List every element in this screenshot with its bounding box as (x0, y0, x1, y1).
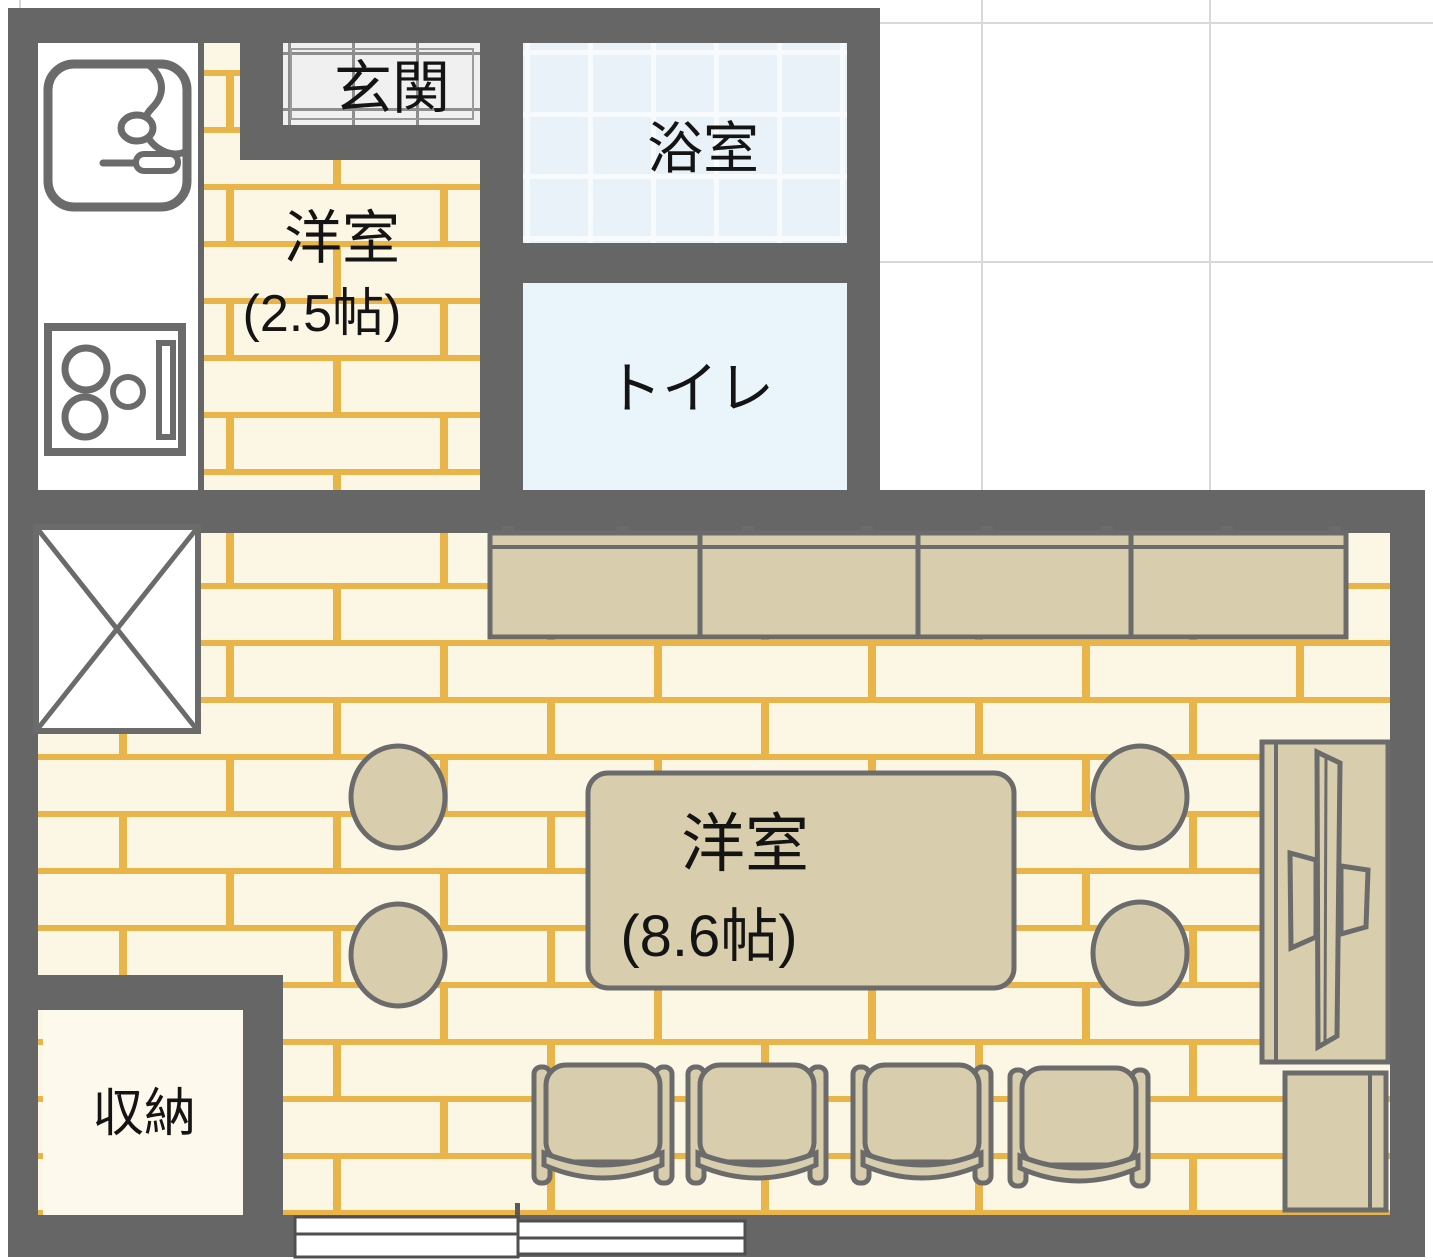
wall-bath-toilet-divider (523, 243, 847, 283)
wall-entrance-bottom (240, 125, 480, 160)
wall-right (1390, 495, 1425, 1257)
floorplan-canvas: 玄関 浴室 トイレ 洋室 (2.5帖) 洋室 (8.6帖) 収納 (0, 0, 1433, 1260)
tv-screen (1317, 752, 1340, 1047)
storage-label: 収納 (92, 1085, 196, 1143)
toilet-label: トイレ (606, 357, 774, 420)
stool (351, 904, 445, 1006)
wall-storage-right (243, 975, 283, 1215)
tv-stand-left (1290, 853, 1316, 948)
western-room-small-label: 洋室 (284, 206, 400, 271)
stool (1093, 746, 1187, 848)
stool (1093, 902, 1187, 1004)
wall-main-room-top (8, 490, 1425, 533)
wall-cabinet-row (490, 526, 1346, 637)
chair (534, 1065, 672, 1183)
side-cabinet (1285, 1073, 1386, 1210)
wall-kitchen-divider (198, 43, 204, 490)
western-room-main-size: (8.6帖) (620, 904, 797, 969)
bath-label: 浴室 (647, 117, 759, 180)
wall-bath-column-left (480, 43, 523, 490)
kitchen-stove-icon (48, 327, 182, 452)
tv-stand-right (1341, 866, 1368, 934)
western-room-small-size: (2.5帖) (243, 285, 402, 343)
door-panel-left (295, 1217, 518, 1257)
entrance-label: 玄関 (334, 56, 450, 121)
wall-storage-top (8, 975, 283, 1010)
chair (1010, 1068, 1148, 1186)
western-room-main-label: 洋室 (681, 808, 809, 880)
chair (688, 1065, 826, 1183)
wall-top (8, 8, 880, 43)
stool (351, 746, 445, 848)
wall-bath-column-right (847, 8, 880, 495)
tv-board (1262, 742, 1388, 1062)
kitchen-sink-icon (48, 64, 188, 207)
closet-x-symbol (36, 527, 198, 731)
chair (853, 1065, 991, 1183)
